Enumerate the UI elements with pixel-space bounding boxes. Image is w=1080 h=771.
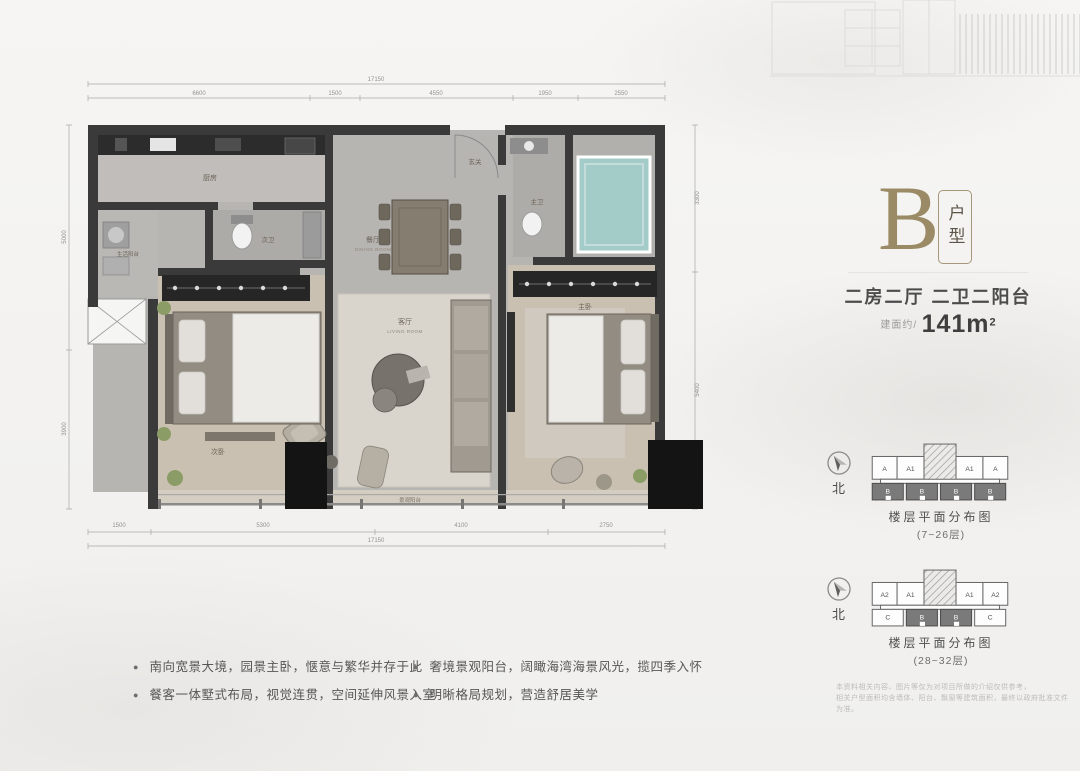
dim-top-seg: 2550 <box>614 91 628 97</box>
room-label-master: 主卧 <box>578 302 592 311</box>
room-label-entry: 玄关 <box>469 157 483 166</box>
disclaimer: 本资料相关内容、图片等仅为对项目所做的介绍仅供参考， 相关户型面积均含墙体、阳台… <box>836 682 1074 715</box>
cell-label: A1 <box>906 466 914 473</box>
cell-label: A2 <box>881 592 889 599</box>
room-label-living-en: LIVING ROOM <box>387 329 423 334</box>
feature-item: ● 奢境景观阳台，阔瞰海湾海景风光，揽四季入怀 <box>413 660 703 675</box>
area-value: 141m <box>922 310 990 338</box>
feature-item: ● 餐客一体墅式布局，视觉连贯，空间延伸风景入室 <box>133 688 423 703</box>
dim-top-total: 17150 <box>368 77 385 83</box>
dim-top-seg: 1500 <box>328 91 342 97</box>
room-label-bedroom2: 次卧 <box>211 447 225 456</box>
floorplan-poster: 17150 6600 1500 4550 1950 2550 1500 5300… <box>0 0 1080 771</box>
cell-label: A2 <box>991 592 999 599</box>
bullet-dot: ● <box>133 688 138 703</box>
area-prefix: 建面约/ <box>880 320 917 331</box>
dim-top-seg: 6600 <box>192 91 206 97</box>
room-label-dining-en: DINING ROOM <box>355 247 392 252</box>
cell-label: A1 <box>965 592 973 599</box>
dim-right-seg: 5400 <box>695 383 701 397</box>
feature-item: ● 南向宽景大境，园景主卧，惬意与繁华并存于此 <box>133 660 423 675</box>
feature-text: 明晰格局规划，营造舒居美学 <box>429 688 598 703</box>
dark-column-left <box>285 442 327 509</box>
cell-label-b: B <box>920 489 925 496</box>
cell-label: A <box>993 466 998 473</box>
unit-type-label: 户型 <box>943 204 968 250</box>
dim-bottom-seg: 1500 <box>112 523 126 529</box>
stack-diagram-1-graphic: A A1 A1 A B B B B <box>870 442 1010 502</box>
unit-type-letter: B <box>878 172 941 264</box>
room-label-living-cn: 客厅 <box>398 317 412 326</box>
north-compass-icon <box>826 450 852 476</box>
stack-diagram-1: 北 A A1 A1 A <box>822 442 1072 552</box>
north-label: 北 <box>832 604 845 623</box>
bathtub <box>578 157 650 252</box>
feature-text: 奢境景观阳台，阔瞰海湾海景风光，揽四季入怀 <box>429 660 702 675</box>
disclaimer-line-2: 相关户型面积均含墙体、阳台、飘窗等建筑面积，最终以政府批准文件为准。 <box>836 693 1074 715</box>
feature-text: 餐客一体墅式布局，视觉连贯，空间延伸风景入室 <box>149 688 435 703</box>
dim-bottom-seg: 4100 <box>454 523 468 529</box>
disclaimer-line-1: 本资料相关内容、图片等仅为对项目所做的介绍仅供参考， <box>836 682 1074 693</box>
dim-top-seg: 1950 <box>538 91 552 97</box>
diagram-floors: (7~26层) <box>846 527 1036 542</box>
dim-bottom-seg: 2750 <box>599 523 613 529</box>
room-label-dining-cn: 餐厅 <box>366 235 380 244</box>
cell-label: A <box>882 466 887 473</box>
stack-diagram-2-graphic: A2 A1 A1 A2 C C B B <box>870 568 1010 628</box>
cell-label-b: B <box>954 489 959 496</box>
cell-label: A1 <box>965 466 973 473</box>
cell-label-b: B <box>886 489 891 496</box>
dim-bottom-seg: 5300 <box>256 523 270 529</box>
floor-plan: 17150 6600 1500 4550 1950 2550 1500 5300… <box>55 62 735 577</box>
elevation-sketch-decoration <box>770 0 1080 82</box>
cell-label-b: B <box>988 489 993 496</box>
bullet-dot: ● <box>133 660 138 675</box>
room-label-bath1: 主卫 <box>531 197 545 206</box>
diagram-caption: 楼层平面分布图 <box>846 634 1036 651</box>
room-label-service-balcony: 生活阳台 <box>117 250 140 258</box>
dim-right-seg: 3300 <box>695 191 701 205</box>
dark-column-right <box>648 440 703 509</box>
unit-type-label-box: 户型 <box>938 190 972 264</box>
cell-label: C <box>885 615 890 622</box>
layout-summary: 二房二厅 二卫二阳台 <box>808 283 1068 309</box>
north-label: 北 <box>832 478 845 497</box>
area-sup: 2 <box>990 317 996 329</box>
cell-label: A1 <box>906 592 914 599</box>
feature-text: 南向宽景大境，园景主卧，惬意与繁华并存于此 <box>149 660 422 675</box>
room-label-bath2: 次卫 <box>262 235 276 244</box>
panel-divider <box>848 272 1028 273</box>
dim-bottom-total: 17150 <box>368 538 385 544</box>
feature-item: ● 明晰格局规划，营造舒居美学 <box>413 688 703 703</box>
room-label-kitchen: 厨房 <box>203 173 217 182</box>
cell-label-b: B <box>954 615 959 622</box>
stack-diagram-2: 北 A2 A1 A1 A2 C C B B <box>822 568 1072 678</box>
bullet-dot: ● <box>413 688 418 703</box>
diagram-floors: (28~32层) <box>846 653 1036 668</box>
dim-top-seg: 4550 <box>429 91 443 97</box>
dim-left-seg: 3900 <box>62 422 68 436</box>
diagram-caption: 楼层平面分布图 <box>846 508 1036 525</box>
area-line: 建面约/ 141m2 <box>808 310 1068 339</box>
dim-left-seg: 5000 <box>62 230 68 244</box>
room-label-balcony: 景观阳台 <box>399 496 422 504</box>
feature-list-right: ● 奢境景观阳台，阔瞰海湾海景风光，揽四季入怀 ● 明晰格局规划，营造舒居美学 <box>413 660 703 716</box>
north-compass-icon <box>826 576 852 602</box>
feature-list-left: ● 南向宽景大境，园景主卧，惬意与繁华并存于此 ● 餐客一体墅式布局，视觉连贯，… <box>133 660 423 716</box>
cell-label-b: B <box>920 615 925 622</box>
cell-label: C <box>988 615 993 622</box>
kitchen-counter <box>98 135 325 155</box>
bullet-dot: ● <box>413 660 418 675</box>
